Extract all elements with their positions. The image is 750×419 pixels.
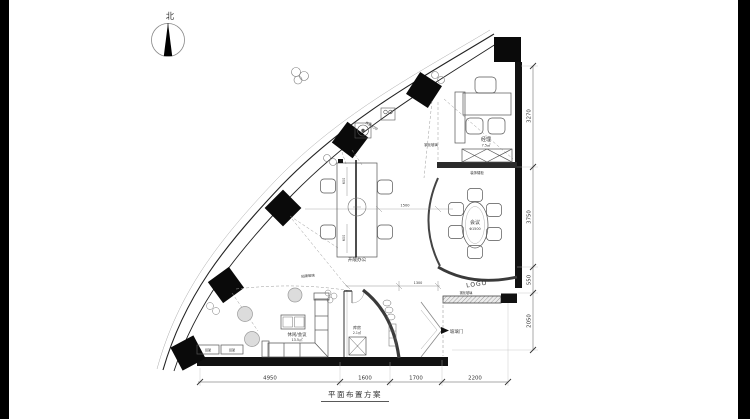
dim-bottom-4: 2200: [468, 376, 482, 382]
glass-door-label: 玻璃门: [450, 328, 463, 335]
curved-glass-wall: [428, 178, 440, 266]
floor-plan-canvas: 北 钢化玻璃 贴膜玻璃: [0, 0, 750, 419]
lounge-label: 休闲/会议: [287, 331, 307, 338]
north-label: 北: [166, 12, 175, 22]
title-block: 平面布置方案: [321, 389, 389, 402]
dim-entry-door: 1300: [414, 281, 423, 285]
storage-label: 库房: [353, 324, 361, 330]
open-office-label: 开敞办公: [348, 256, 367, 263]
pouf: [238, 307, 253, 322]
entrance: [421, 300, 449, 357]
desk-return: [455, 92, 465, 143]
dim-right-1: 3270: [527, 109, 533, 123]
dim-right-2: 3750: [527, 210, 533, 224]
dim-bottom-1: 4950: [263, 376, 277, 382]
office-chair: [378, 225, 393, 239]
dim-desk-bay: 600: [342, 178, 346, 184]
storage-room: [344, 290, 399, 358]
manager-room-label: 经理: [481, 136, 491, 143]
low-cabinet-label: 装饰矮柜: [470, 170, 484, 175]
storage-area: 2.1㎡: [353, 330, 362, 335]
column: [265, 190, 302, 227]
low-cabinet: [462, 149, 512, 162]
dim-desk-gap: 1500: [400, 204, 410, 208]
work-table: [337, 163, 377, 257]
dim-bottom-3: 1700: [409, 376, 423, 382]
door-swing: [352, 291, 364, 303]
tempered-glass-label: 钢化玻璃: [460, 290, 474, 295]
office-chair: [378, 180, 393, 194]
dim-desk-bay: 600: [342, 235, 346, 241]
meeting-room-label: 会议: [470, 219, 480, 226]
office-chair: [321, 179, 336, 193]
manager-room-area: 7.5㎡: [482, 143, 491, 148]
columns: [170, 37, 521, 371]
north-compass: 北: [152, 12, 185, 57]
floor-plan-screenshot: 北 钢化玻璃 贴膜玻璃: [0, 0, 750, 419]
pouf: [245, 332, 260, 347]
column: [406, 72, 442, 108]
guest-chair: [488, 118, 505, 134]
meeting-chair: [487, 204, 502, 217]
dim-right-4: 2050: [527, 314, 533, 328]
plant-icon: [207, 303, 220, 315]
frame-bars: [0, 0, 750, 419]
glass-door-swing: [421, 302, 442, 357]
shelf-label: 货架: [229, 348, 236, 353]
dim-right-3: 550: [527, 274, 533, 285]
meeting-chair: [468, 246, 483, 259]
manager-desk: [463, 93, 511, 115]
logo-wall: [438, 267, 517, 280]
film-glass-label: 贴膜玻璃: [301, 272, 316, 278]
plant-icon: [325, 290, 337, 303]
meeting-chair: [468, 189, 483, 202]
meeting-chair: [449, 226, 464, 239]
sofa: [268, 299, 328, 357]
door-arrow-icon: [441, 327, 449, 334]
meeting-chair: [487, 228, 502, 241]
lounge-area: 13.5㎡: [292, 337, 304, 342]
column: [208, 267, 244, 303]
manager-office: [455, 77, 512, 162]
meeting-room-size: Φ1500: [469, 227, 480, 231]
tempered-glass-label: 钢化玻璃: [424, 142, 438, 147]
logo-wall-label: LOGO: [466, 280, 488, 290]
drawing-title: 平面布置方案: [328, 389, 382, 399]
shelf-label: 货架: [205, 348, 212, 353]
lounge: [197, 288, 337, 357]
office-chair: [475, 77, 496, 93]
plant-icon: [292, 68, 309, 85]
column: [494, 37, 521, 62]
column: [332, 122, 368, 158]
dim-bottom-2: 1600: [358, 376, 372, 382]
office-chair: [321, 225, 336, 239]
entrance-top-wall: [443, 296, 501, 303]
pouf: [288, 288, 302, 302]
